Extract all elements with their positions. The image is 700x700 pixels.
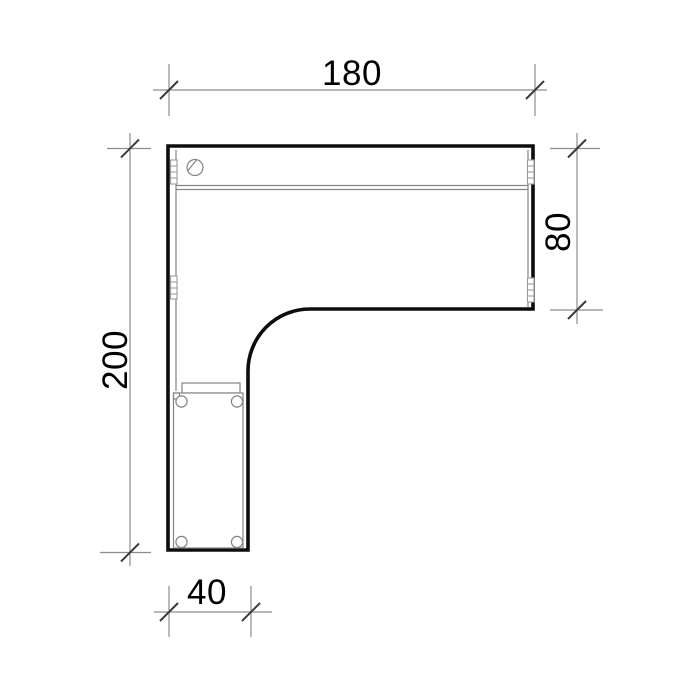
technical-drawing-canvas: 180 200 80 40 (0, 0, 700, 700)
bracket-right-middle (528, 278, 535, 302)
bracket-right-top (528, 160, 535, 184)
desk-plan-drawing: 180 200 80 40 (0, 0, 700, 700)
caster-top-right (231, 396, 242, 407)
dimension-left: 200 (96, 133, 151, 566)
pedestal-handle (182, 383, 240, 393)
bracket-left-top (171, 160, 178, 184)
caster-bottom-left (176, 536, 187, 547)
pedestal-unit (174, 383, 244, 548)
bracket-left-middle (171, 276, 178, 299)
dimension-top: 180 (153, 54, 547, 116)
pedestal-body (174, 393, 244, 548)
dimension-bottom: 40 (154, 573, 272, 637)
dimension-bottom-label: 40 (187, 573, 227, 612)
caster-top-left (176, 396, 187, 407)
cable-grommet-icon (187, 160, 203, 176)
dimension-right: 80 (539, 133, 603, 324)
caster-bottom-right (231, 536, 242, 547)
dimension-top-label: 180 (322, 54, 382, 93)
dimension-left-label: 200 (96, 330, 135, 390)
dimension-right-label: 80 (539, 212, 578, 252)
